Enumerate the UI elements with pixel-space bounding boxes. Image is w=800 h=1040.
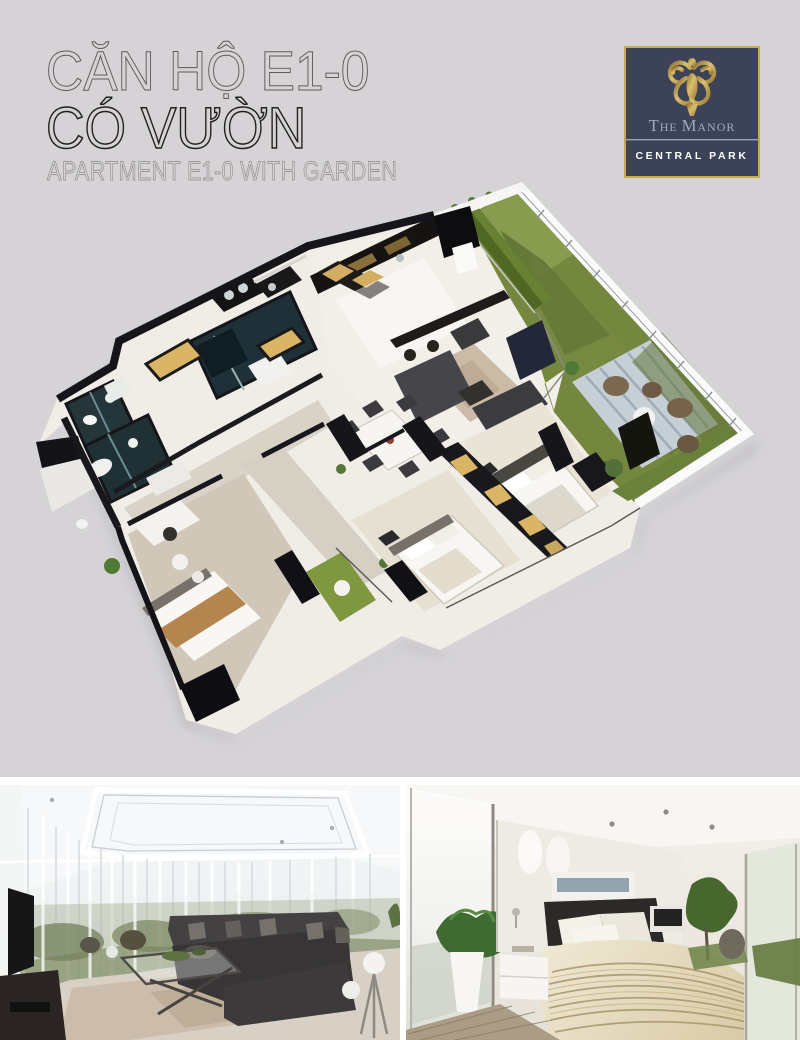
svg-text:CĂN HỘ E1-0: CĂN HỘ E1-0 <box>46 40 369 102</box>
svg-text:CENTRAL PARK: CENTRAL PARK <box>635 150 748 162</box>
svg-text:CÓ VƯỜN: CÓ VƯỜN <box>46 96 306 161</box>
